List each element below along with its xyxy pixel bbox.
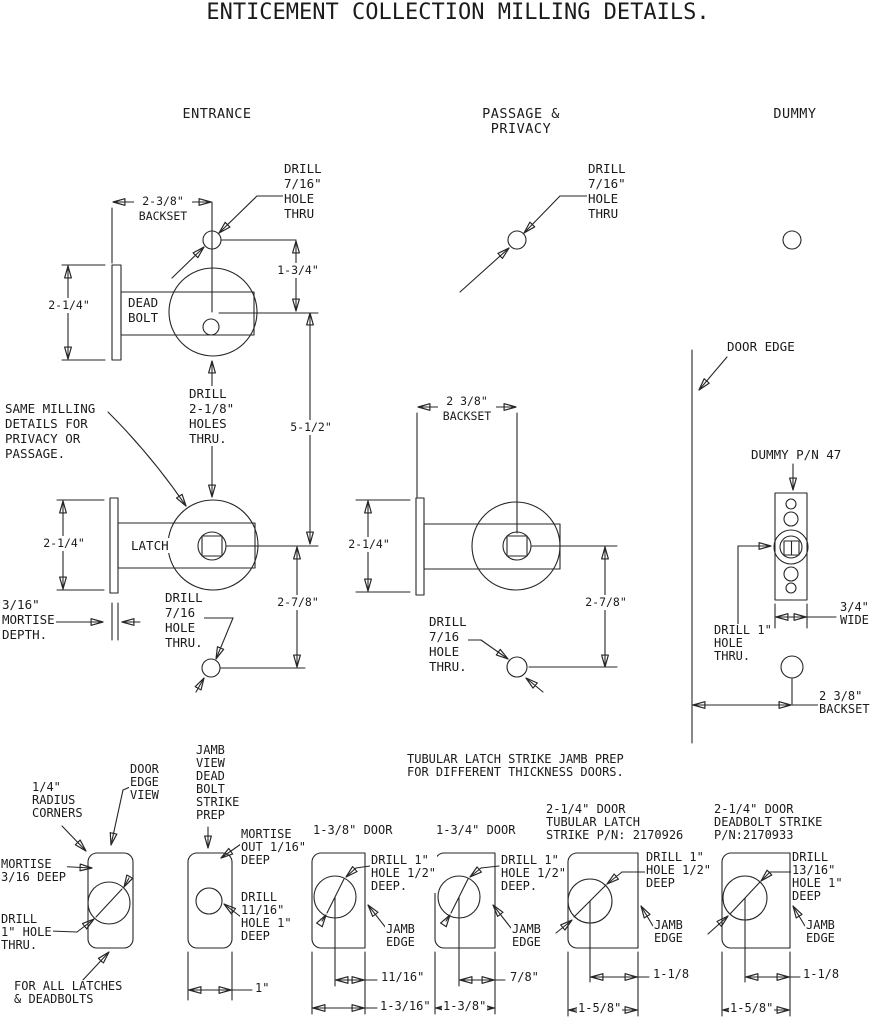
edge-view-drill-note: DRILL 1" HOLE THRU. bbox=[0, 913, 53, 952]
door-134-jamb-edge-label: JAMB EDGE bbox=[511, 923, 542, 949]
construction-lines bbox=[722, 872, 800, 1016]
radius-corners-note: 1/4" RADIUS CORNERS bbox=[31, 781, 84, 820]
passage-drill-top-note: DRILL 7/16" HOLE THRU bbox=[587, 161, 627, 221]
edge-view-plate bbox=[88, 853, 133, 948]
dimension-arrow-line bbox=[368, 905, 386, 928]
door-214-deadbolt-width-dim: 1-5/8" bbox=[729, 1002, 774, 1015]
strike-prep-heading: TUBULAR LATCH STRIKE JAMB PREP FOR DIFFE… bbox=[406, 753, 625, 779]
strike-hole bbox=[196, 888, 222, 914]
dimension-arrow-line bbox=[708, 916, 728, 934]
strike-plate bbox=[568, 853, 638, 948]
door-138-drill-note: DRILL 1" HOLE 1/2" DEEP. bbox=[370, 854, 437, 893]
plate-hole-upper bbox=[784, 512, 798, 526]
dimension-arrow-line bbox=[172, 247, 204, 278]
dummy-drawing bbox=[692, 231, 836, 743]
dimension-arrow-line bbox=[219, 196, 257, 233]
door-138-title: 1-3/8" DOOR bbox=[312, 824, 393, 837]
dimension-arrow-line bbox=[446, 915, 450, 921]
latch-rose bbox=[168, 500, 258, 590]
dimension-arrow-line bbox=[470, 868, 481, 877]
door-214-latch-title: 2-1/4" DOOR TUBULAR LATCH STRIKE P/N: 21… bbox=[545, 803, 684, 842]
deadbolt-rose bbox=[169, 268, 257, 356]
latch-label: LATCH bbox=[130, 538, 170, 553]
latch-faceplate bbox=[110, 498, 118, 593]
dimension-arrow-line bbox=[526, 678, 543, 692]
jamb-view-title: JAMB VIEW DEAD BOLT STRIKE PREP bbox=[195, 744, 240, 822]
door-214-deadbolt-title: 2-1/4" DOOR DEADBOLT STRIKE P/N:2170933 bbox=[713, 803, 823, 842]
entrance-hole-spacing-dim: 1-3/4" bbox=[274, 263, 322, 278]
dimension-arrow-line bbox=[346, 868, 356, 877]
door-214-latch-jamb-edge-label: JAMB EDGE bbox=[653, 919, 684, 945]
door-134-drill-note: DRILL 1" HOLE 1/2" DEEP. bbox=[500, 854, 567, 893]
strike-plate bbox=[312, 853, 365, 948]
door-214-latch-drill-note: DRILL 1" HOLE 1/2" DEEP bbox=[645, 851, 712, 890]
door-edge-label: DOOR EDGE bbox=[726, 339, 796, 354]
construction-lines bbox=[312, 866, 377, 1014]
construction-lines bbox=[108, 412, 186, 506]
dimension-arrow-line bbox=[111, 790, 123, 845]
door-214-latch-offset-dim: 1-1/8 bbox=[652, 968, 690, 981]
construction-lines bbox=[188, 952, 252, 1000]
deadbolt-faceplate bbox=[112, 265, 121, 360]
passage-backset-dim: 2 3/8" BACKSET bbox=[438, 394, 496, 424]
door-edge-view-label: DOOR EDGE VIEW bbox=[129, 763, 160, 802]
mortise-deep-note: MORTISE 3/16 DEEP bbox=[0, 858, 67, 884]
dimension-arrow-line bbox=[607, 872, 622, 884]
spindle-square bbox=[507, 536, 527, 556]
dimension-arrow-line bbox=[460, 248, 509, 292]
cross-bore-hole-bottom bbox=[507, 657, 527, 677]
entrance-heading: ENTRANCE bbox=[181, 107, 253, 122]
construction-lines bbox=[568, 872, 649, 1016]
dimension-arrow-line bbox=[216, 618, 233, 659]
door-134-title: 1-3/4" DOOR bbox=[435, 824, 516, 837]
dummy-heading: DUMMY bbox=[769, 107, 821, 122]
screw-hole-bottom bbox=[786, 583, 796, 593]
door-214-deadbolt-offset-dim: 1-1/8 bbox=[802, 968, 840, 981]
same-milling-note: SAME MILLING DETAILS FOR PRIVACY OR PASS… bbox=[4, 401, 96, 461]
dimension-arrow-line bbox=[82, 952, 109, 981]
dummy-plate-width-dim: 3/4" WIDE bbox=[839, 601, 870, 627]
door-134-width-dim: 1-3/8" bbox=[442, 1000, 487, 1013]
door-138-jamb-edge-label: JAMB EDGE bbox=[385, 923, 416, 949]
passage-privacy-drawing bbox=[356, 196, 617, 692]
entrance-drill-top-note: DRILL 7/16" HOLE THRU bbox=[283, 161, 323, 221]
dimension-arrow-line bbox=[62, 826, 86, 851]
cross-bore-hole-top bbox=[508, 231, 526, 249]
dummy-hole-top bbox=[783, 231, 801, 249]
door-214-deadbolt-jamb-edge-label: JAMB EDGE bbox=[805, 919, 836, 945]
dimension-arrow-line bbox=[481, 640, 508, 659]
entrance-center-spacing-dim: 5-1/2" bbox=[288, 420, 334, 435]
screw-hole-top bbox=[786, 499, 796, 509]
latch-faceplate bbox=[416, 498, 424, 595]
door-134-offset-dim: 7/8" bbox=[509, 971, 540, 984]
dummy-part-number-note: DUMMY P/N 47 bbox=[750, 447, 842, 462]
door-214-latch-width-dim: 1-5/8" bbox=[577, 1002, 622, 1015]
jamb-view-drill-note: DRILL 11/16" HOLE 1" DEEP bbox=[240, 891, 293, 943]
passage-privacy-heading: PASSAGE & PRIVACY bbox=[448, 107, 594, 137]
dimension-arrow-line bbox=[699, 357, 727, 390]
page-title: ENTICEMENT COLLECTION MILLING DETAILS. bbox=[204, 2, 712, 24]
dimension-arrow-line bbox=[493, 905, 511, 928]
strike-plate bbox=[188, 853, 232, 948]
entrance-latch-height-dim: 2-1/4" bbox=[37, 536, 91, 551]
cross-bore-hole-bottom bbox=[202, 659, 220, 677]
mortise-depth-note: 3/16" MORTISE DEPTH. bbox=[1, 597, 56, 642]
applies-to-all-note: FOR ALL LATCHES & DEADBOLTS bbox=[13, 980, 123, 1006]
construction-lines bbox=[356, 196, 617, 667]
strike-plate bbox=[722, 853, 790, 948]
passage-drill-bottom-note: DRILL 7/16 HOLE THRU. bbox=[428, 614, 468, 674]
spindle-square bbox=[202, 536, 222, 556]
entrance-deadbolt-height-dim: 2-1/4" bbox=[42, 298, 96, 313]
dimension-arrow-line bbox=[77, 919, 94, 932]
door-138-width-dim: 1-3/16" bbox=[379, 1000, 432, 1013]
mortise-out-note: MORTISE OUT 1/16" DEEP bbox=[240, 828, 307, 867]
dimension-arrow-line bbox=[556, 920, 572, 933]
entrance-bottom-spacing-dim: 2-7/8" bbox=[275, 595, 321, 610]
deadbolt-hole bbox=[203, 319, 219, 335]
strike-2-14-latch-drawing bbox=[556, 853, 653, 1016]
entrance-drill-bottom-note: DRILL 7/16 HOLE THRU. bbox=[164, 590, 204, 650]
dummy-backset-dim: 2 3/8" BACKSET bbox=[818, 690, 870, 716]
milling-details-sheet: ENTICEMENT COLLECTION MILLING DETAILS. E… bbox=[0, 0, 870, 1024]
entrance-drill-cross-note: DRILL 2-1/8" HOLES THRU. bbox=[188, 386, 235, 446]
dimension-arrow-line bbox=[322, 915, 326, 921]
passage-bottom-spacing-dim: 2-7/8" bbox=[583, 595, 629, 610]
plate-hole-lower bbox=[784, 567, 798, 581]
dimension-arrow-line bbox=[196, 678, 204, 692]
dummy-drill-note: DRILL 1" HOLE THRU. bbox=[713, 624, 773, 663]
dummy-hole-bottom bbox=[781, 656, 803, 678]
dimension-arrow-line bbox=[524, 196, 560, 233]
deadbolt-label: DEAD BOLT bbox=[127, 295, 159, 325]
dimension-arrow-line bbox=[793, 906, 805, 926]
door-138-offset-dim: 11/16" bbox=[380, 971, 425, 984]
dimension-arrow-line bbox=[761, 872, 770, 881]
dimension-arrow-line bbox=[124, 878, 129, 887]
dimension-arrow-line bbox=[641, 906, 653, 926]
passage-latch-height-dim: 2-1/4" bbox=[342, 537, 396, 552]
jamb-view-width-dim: 1" bbox=[254, 982, 270, 995]
entrance-backset-dim: 2-3/8" BACKSET bbox=[134, 194, 192, 224]
door-214-deadbolt-drill-note: DRILL 13/16" HOLE 1" DEEP bbox=[791, 851, 870, 903]
dimension-arrow-line bbox=[221, 844, 241, 858]
